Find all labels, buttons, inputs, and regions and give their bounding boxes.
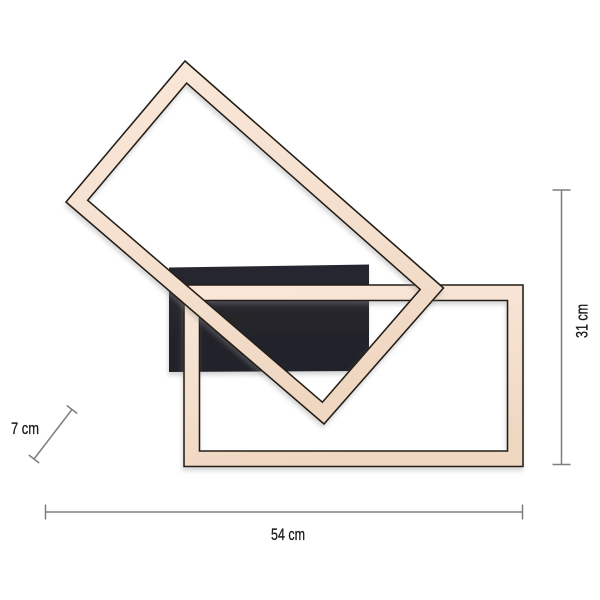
svg-text:54 cm: 54 cm [271,525,305,544]
svg-text:7 cm: 7 cm [11,419,39,438]
svg-text:31 cm: 31 cm [573,304,592,338]
